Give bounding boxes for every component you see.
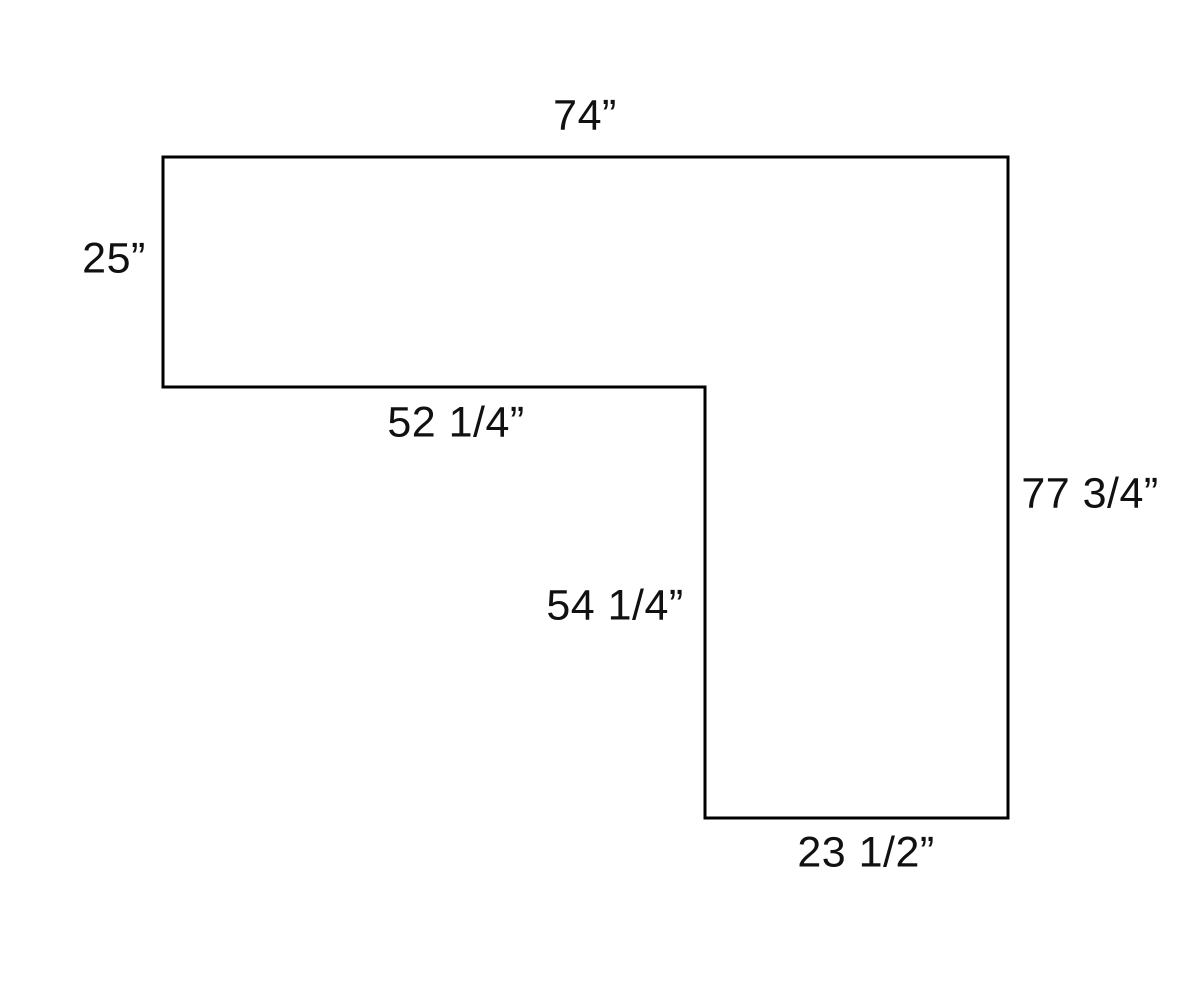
- dimension-label-left-depth: 25”: [82, 238, 146, 281]
- dimension-label-inner-horizontal: 52 1/4”: [387, 402, 524, 445]
- dimension-label-bottom-width: 23 1/2”: [797, 832, 934, 875]
- l-shape-outline: [163, 157, 1008, 818]
- dimension-label-right-height: 77 3/4”: [1021, 473, 1158, 516]
- l-shape-drawing: [0, 0, 1200, 1000]
- dimension-label-top-width: 74”: [553, 95, 617, 138]
- dimension-label-inner-vertical: 54 1/4”: [546, 585, 683, 628]
- dimension-diagram: 74” 25” 52 1/4” 54 1/4” 77 3/4” 23 1/2”: [0, 0, 1200, 1000]
